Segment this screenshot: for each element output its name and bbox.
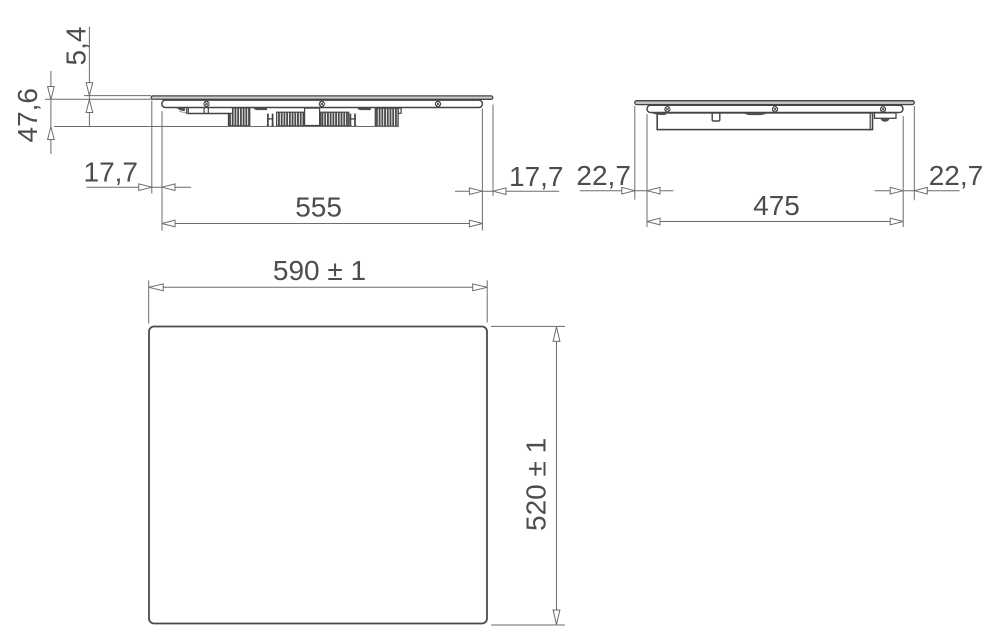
svg-text:520 ± 1: 520 ± 1	[521, 438, 552, 531]
svg-text:590 ± 1: 590 ± 1	[273, 255, 366, 286]
svg-text:555: 555	[295, 191, 342, 222]
svg-text:47,6: 47,6	[12, 88, 43, 143]
svg-text:17,7: 17,7	[84, 156, 139, 187]
svg-text:22,7: 22,7	[576, 160, 631, 191]
svg-text:22,7: 22,7	[929, 160, 984, 191]
svg-text:17,7: 17,7	[509, 161, 564, 192]
svg-text:475: 475	[753, 190, 800, 221]
svg-text:5,4: 5,4	[61, 27, 92, 66]
